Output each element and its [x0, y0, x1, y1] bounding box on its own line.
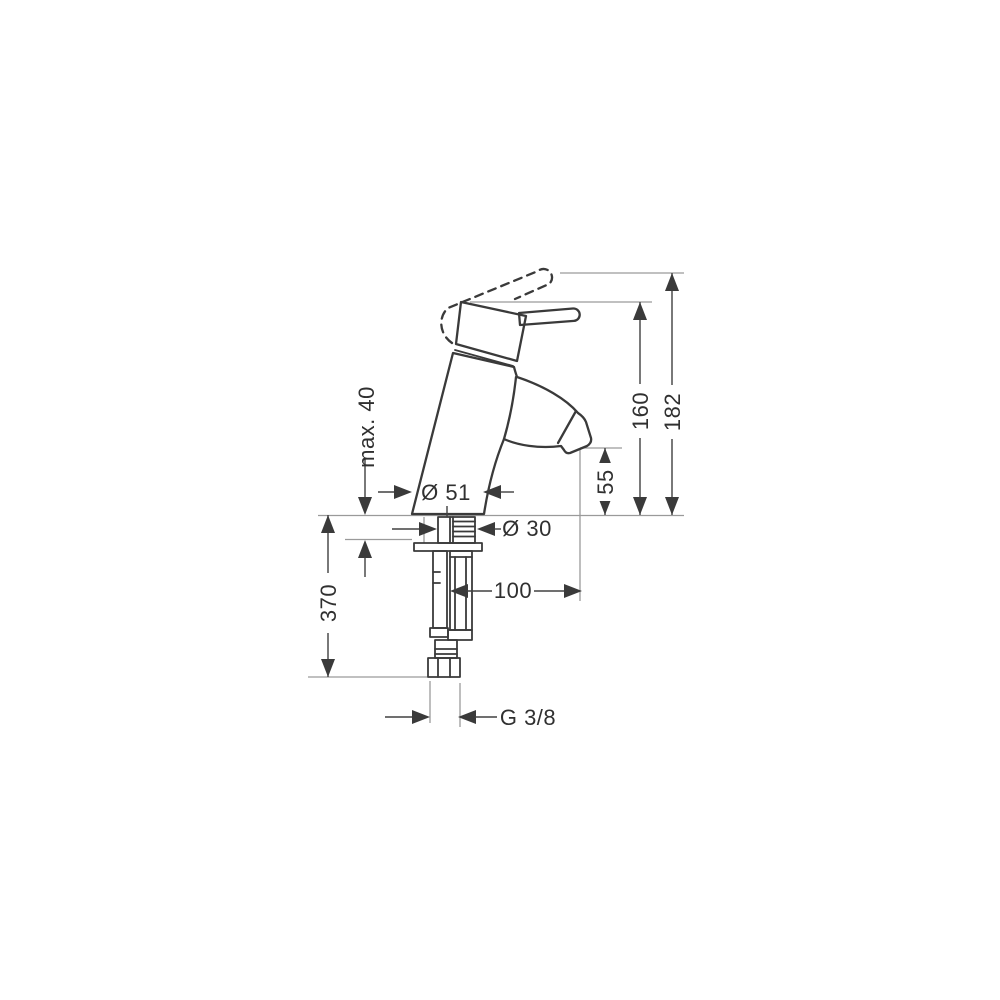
arrowhead-182-down	[665, 497, 679, 515]
arrowhead-g38-right	[458, 710, 476, 724]
spout-body-junction-line	[504, 377, 516, 439]
dim-label-connection-thread: G 3/8	[500, 705, 556, 730]
arrowhead-g38-left	[412, 710, 430, 724]
arrowhead-100-right	[564, 584, 582, 598]
arrowhead-dia30-left	[419, 522, 437, 536]
rod-end-foot	[430, 628, 448, 637]
arrowhead-100-left	[450, 584, 468, 598]
lever-rest-position	[519, 308, 580, 325]
dimension-160: 160	[628, 302, 653, 515]
dim-label-base-diameter: Ø 51	[421, 480, 471, 505]
dimension-g38: G 3/8	[385, 705, 556, 730]
connection-nut	[428, 658, 460, 677]
dim-label-spout-reach: 100	[494, 578, 532, 603]
arrowhead-370-up	[321, 515, 335, 533]
dim-label-hose-length: 370	[316, 584, 341, 622]
dim-label-outlet-height: 55	[593, 469, 618, 494]
dimension-max40: max. 40	[354, 386, 379, 577]
dim-label-height-rest: 160	[628, 392, 653, 430]
dimension-100: 100	[450, 578, 582, 603]
dim-label-shank-diameter: Ø 30	[502, 516, 552, 541]
arrowhead-max40-down	[358, 497, 372, 515]
arrowhead-dia51-left	[394, 485, 412, 499]
arrowhead-182-up	[665, 273, 679, 291]
shank-thread-rungs	[453, 522, 475, 537]
drawing-canvas: max. 40 370 Ø 51 Ø 30 100	[0, 0, 1000, 1000]
arrowhead-dia30-right	[477, 522, 495, 536]
arrowhead-160-up	[633, 302, 647, 320]
dimension-dia51: Ø 51	[378, 480, 514, 517]
dimension-182: 182	[660, 273, 685, 515]
fastening-washer	[414, 543, 482, 551]
dimension-55: 55	[593, 448, 618, 515]
arrowhead-160-down	[633, 497, 647, 515]
hose-end-collar	[448, 630, 472, 640]
pull-rod	[433, 551, 447, 628]
arrowhead-370-down	[321, 659, 335, 677]
handle-head	[456, 302, 526, 361]
dim-label-max-deck-thickness: max. 40	[354, 386, 379, 468]
dimension-370: 370	[316, 515, 341, 677]
arrowhead-max40-up	[358, 540, 372, 558]
spout-end-face-line	[558, 411, 576, 443]
dim-label-height-raised: 182	[660, 393, 685, 431]
faucet-dimension-diagram: max. 40 370 Ø 51 Ø 30 100	[0, 0, 1000, 1000]
faucet-outline	[412, 269, 591, 514]
arrowhead-dia51-right	[483, 485, 501, 499]
